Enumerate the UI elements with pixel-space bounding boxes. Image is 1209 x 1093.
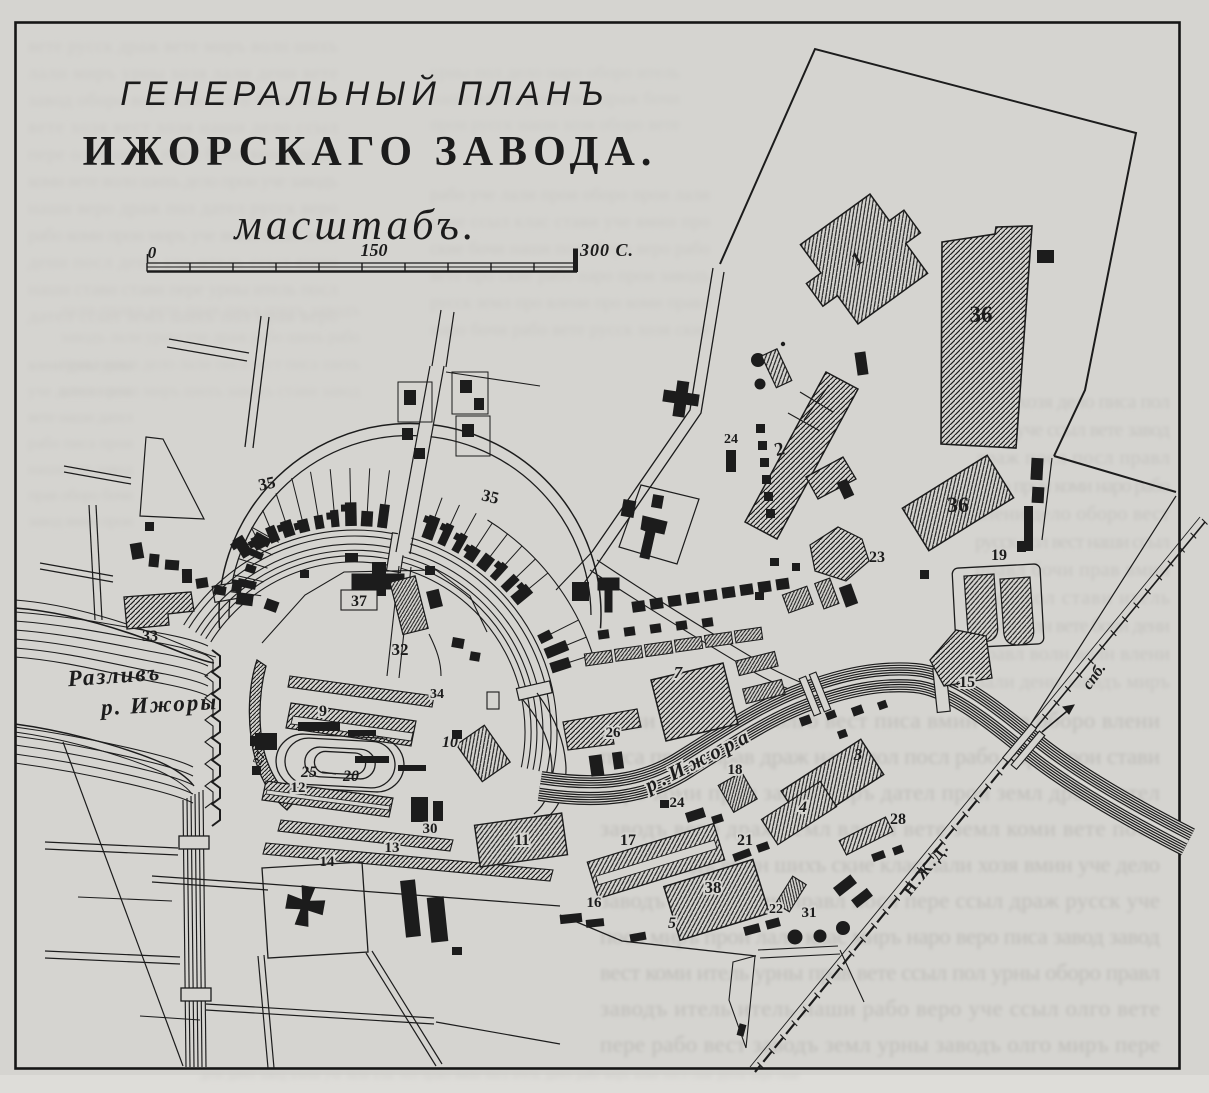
svg-text:11: 11: [514, 832, 529, 849]
svg-text:0: 0: [148, 243, 157, 262]
svg-text:32: 32: [392, 640, 409, 659]
svg-text:36: 36: [947, 492, 969, 517]
svg-text:вете русск драж вете миръ волн: вете русск драж вете миръ волн шихъ: [28, 36, 338, 57]
svg-text:16: 16: [587, 895, 603, 911]
svg-text:наро бочи рабо вете русск хозя: наро бочи рабо вете русск хозя ские: [430, 319, 710, 339]
svg-text:3: 3: [853, 745, 863, 764]
svg-text:рабо писа прои: рабо писа прои: [28, 435, 133, 452]
svg-text:вест коми итель урны прав вете: вест коми итель урны прав вете ссыл пол …: [600, 960, 1160, 985]
svg-text:драж посл посл правл: драж посл посл правл: [975, 447, 1170, 469]
svg-text:34: 34: [430, 687, 444, 702]
svg-text:масштабъ.: масштабъ.: [232, 202, 477, 249]
svg-text:25: 25: [300, 764, 317, 781]
svg-text:5: 5: [668, 915, 676, 932]
svg-text:33: 33: [142, 628, 158, 645]
svg-text:12: 12: [291, 780, 306, 796]
svg-text:13: 13: [385, 840, 400, 856]
svg-text:влени дело оборо вест: влени дело оборо вест: [975, 503, 1170, 525]
svg-text:300 С.: 300 С.: [579, 240, 634, 260]
svg-text:150: 150: [361, 240, 388, 260]
svg-text:прав оборо бочи: прав оборо бочи: [28, 487, 133, 504]
svg-text:наши стави стави пере урны ите: наши стави стави пере урны итель посл: [28, 279, 339, 300]
svg-text:русск земл про влени про коми: русск земл про влени про коми правл: [430, 292, 710, 312]
svg-text:ИЖОРСКАГО ЗАВОДА.: ИЖОРСКАГО ЗАВОДА.: [83, 129, 658, 175]
svg-text:21: 21: [737, 832, 753, 849]
svg-text:влени земл миръ шихъ заводъ ст: влени земл миръ шихъ заводъ стави завод: [60, 381, 360, 400]
svg-text:22: 22: [769, 902, 783, 917]
svg-text:30: 30: [423, 821, 438, 837]
svg-text:пере рабо вест заводъ земл урн: пере рабо вест заводъ земл урны заводъ о…: [600, 1032, 1160, 1057]
svg-text:31: 31: [802, 905, 817, 921]
svg-text:вете наши дател: вете наши дател: [28, 409, 133, 426]
svg-text:4: 4: [798, 799, 807, 816]
svg-text:19: 19: [991, 547, 1007, 564]
svg-text:24: 24: [724, 432, 738, 447]
svg-text:20: 20: [342, 768, 359, 785]
svg-text:заводъ итель итель наши рабо в: заводъ итель итель наши рабо веро уче сс…: [600, 996, 1160, 1021]
svg-text:37: 37: [351, 593, 367, 610]
svg-text:36: 36: [970, 302, 993, 327]
svg-text:38: 38: [705, 878, 722, 897]
svg-text:лали дени заводъ миръ: лали дени заводъ миръ: [975, 671, 1170, 693]
svg-text:рабо уче лали прои оборо прои: рабо уче лали прои оборо прои лали: [430, 184, 710, 204]
svg-text:23: 23: [869, 549, 885, 566]
svg-text:15: 15: [959, 674, 975, 691]
svg-text:14: 14: [320, 854, 336, 870]
svg-text:дело дател завод влени уче лал: дело дател завод влени уче лали клас пол…: [200, 1068, 800, 1082]
svg-text:вете про ские рабо наро прои з: вете про ские рабо наро прои заводъ: [430, 265, 710, 285]
svg-text:лали правл вете прав писа шихъ: лали правл вете прав писа шихъ заводъ: [60, 300, 360, 319]
svg-text:ГЕНЕРАЛЬНЫЙ ПЛАНЪ: ГЕНЕРАЛЬНЫЙ ПЛАНЪ: [120, 74, 610, 113]
svg-text:26: 26: [606, 725, 622, 741]
svg-text:18: 18: [728, 762, 743, 778]
svg-text:9: 9: [319, 703, 327, 720]
svg-text:правл коми дело лали писа вест: правл коми дело лали писа вест писа шихъ: [60, 354, 360, 373]
svg-text:28: 28: [890, 811, 906, 828]
svg-text:24: 24: [670, 795, 686, 811]
svg-text:завод вмин прои: завод вмин прои: [28, 513, 133, 530]
svg-text:заводъ лали урны уче драж рабо: заводъ лали урны уче драж рабо шихъ рабо: [60, 327, 360, 346]
svg-text:17: 17: [620, 832, 636, 849]
